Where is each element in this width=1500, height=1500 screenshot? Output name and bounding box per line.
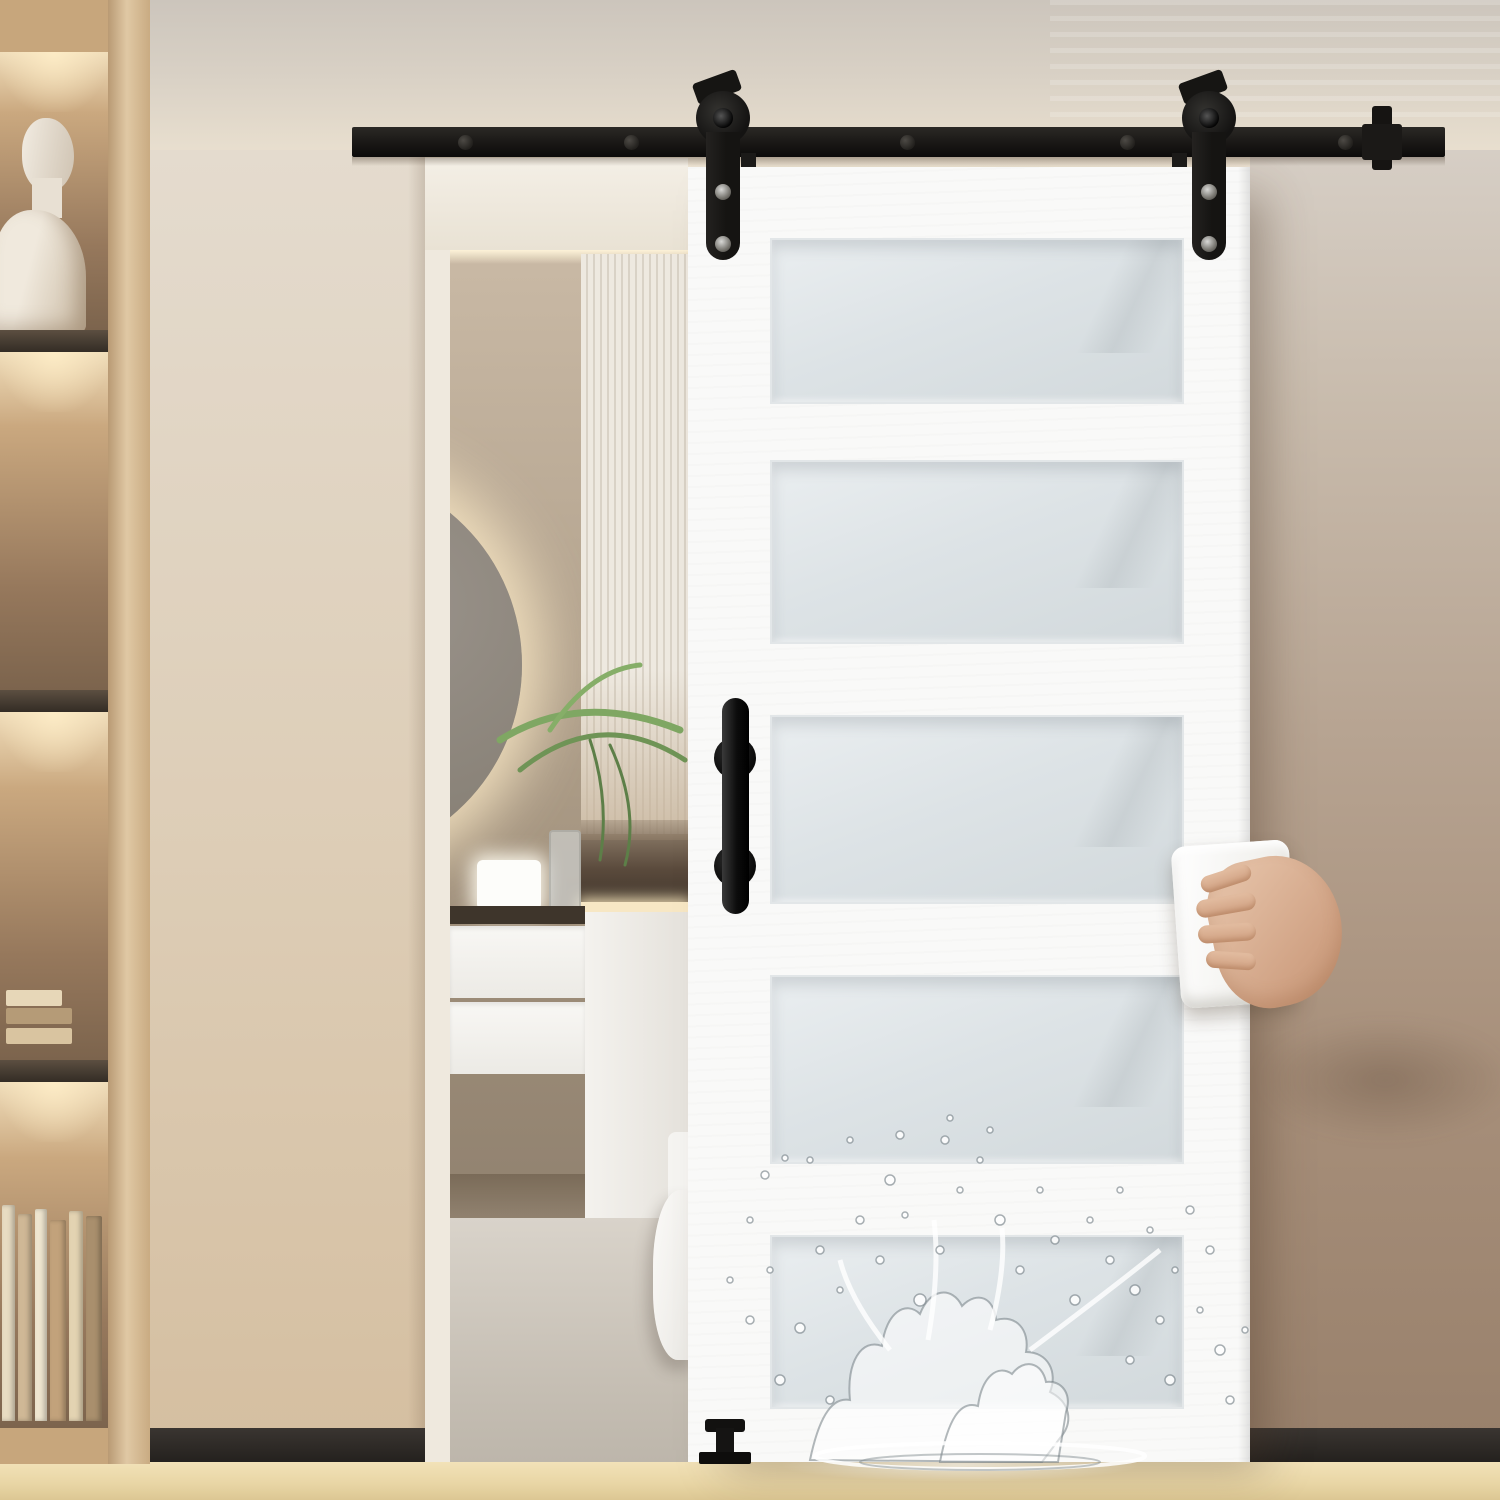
strap-screw <box>1201 184 1217 200</box>
backlit-basin <box>477 860 541 910</box>
potted-plant <box>490 610 688 870</box>
book <box>50 1220 66 1421</box>
bathroom-interior <box>450 250 688 1462</box>
strap-screw <box>715 236 731 252</box>
book <box>2 1205 15 1421</box>
track-bolt <box>458 135 473 150</box>
vanity-shadow <box>450 1174 585 1218</box>
water-splash <box>690 1100 1270 1500</box>
product-image-sliding-barn-door: Widely Use Easy Install <box>0 0 1500 1500</box>
anti-jump-block <box>1172 153 1187 167</box>
hanger-strap <box>1192 132 1226 260</box>
frosted-glass-panel-3 <box>770 715 1184 904</box>
doorway <box>425 158 688 1462</box>
right-wall <box>1250 150 1500 1435</box>
book <box>86 1216 102 1421</box>
arm-wall-shadow <box>1255 1020 1500 1140</box>
strap-screw <box>715 184 731 200</box>
bust-chest <box>0 210 86 333</box>
hanger-strap <box>706 132 740 260</box>
bust-sculpture <box>0 118 92 333</box>
track-bolt <box>624 135 639 150</box>
bookshelf-frame <box>108 0 150 1464</box>
book-row <box>2 1205 102 1421</box>
track-end-spacer <box>1362 124 1402 160</box>
shelf-board <box>0 690 108 712</box>
ceiling-light-streaks <box>1050 0 1500 120</box>
door-handle[interactable] <box>722 698 749 914</box>
book <box>69 1211 83 1421</box>
frosted-glass-panel-2 <box>770 460 1184 644</box>
shelf-light <box>0 1082 108 1142</box>
anti-jump-block <box>741 153 756 167</box>
vanity-counter <box>450 906 585 924</box>
stacked-books <box>6 990 76 1060</box>
track-bolt <box>1338 135 1353 150</box>
vanity-drawer <box>450 1002 585 1074</box>
barn-door-track <box>352 127 1445 157</box>
frosted-glass-panel-1 <box>770 238 1184 404</box>
track-shadow <box>352 157 1445 166</box>
strap-screw <box>1201 236 1217 252</box>
left-wall <box>150 150 425 1435</box>
book <box>35 1209 47 1421</box>
track-bolt <box>900 135 915 150</box>
vanity-drawer <box>450 926 585 998</box>
doorway-header <box>425 158 688 250</box>
finger <box>1205 950 1256 970</box>
doorway-edge-shadow <box>408 150 425 1435</box>
shelf-board <box>0 1060 108 1082</box>
wheel-hub <box>1199 108 1219 128</box>
shelf-light <box>0 712 108 772</box>
wheel-hub <box>713 108 733 128</box>
shelf-light <box>0 352 108 412</box>
track-bolt <box>1120 135 1135 150</box>
shelf-board <box>0 330 108 352</box>
book <box>18 1214 33 1421</box>
glass-cup <box>549 830 581 914</box>
shelf-light <box>0 52 108 112</box>
bookshelf <box>0 0 150 1464</box>
cabinet-light <box>581 902 688 912</box>
